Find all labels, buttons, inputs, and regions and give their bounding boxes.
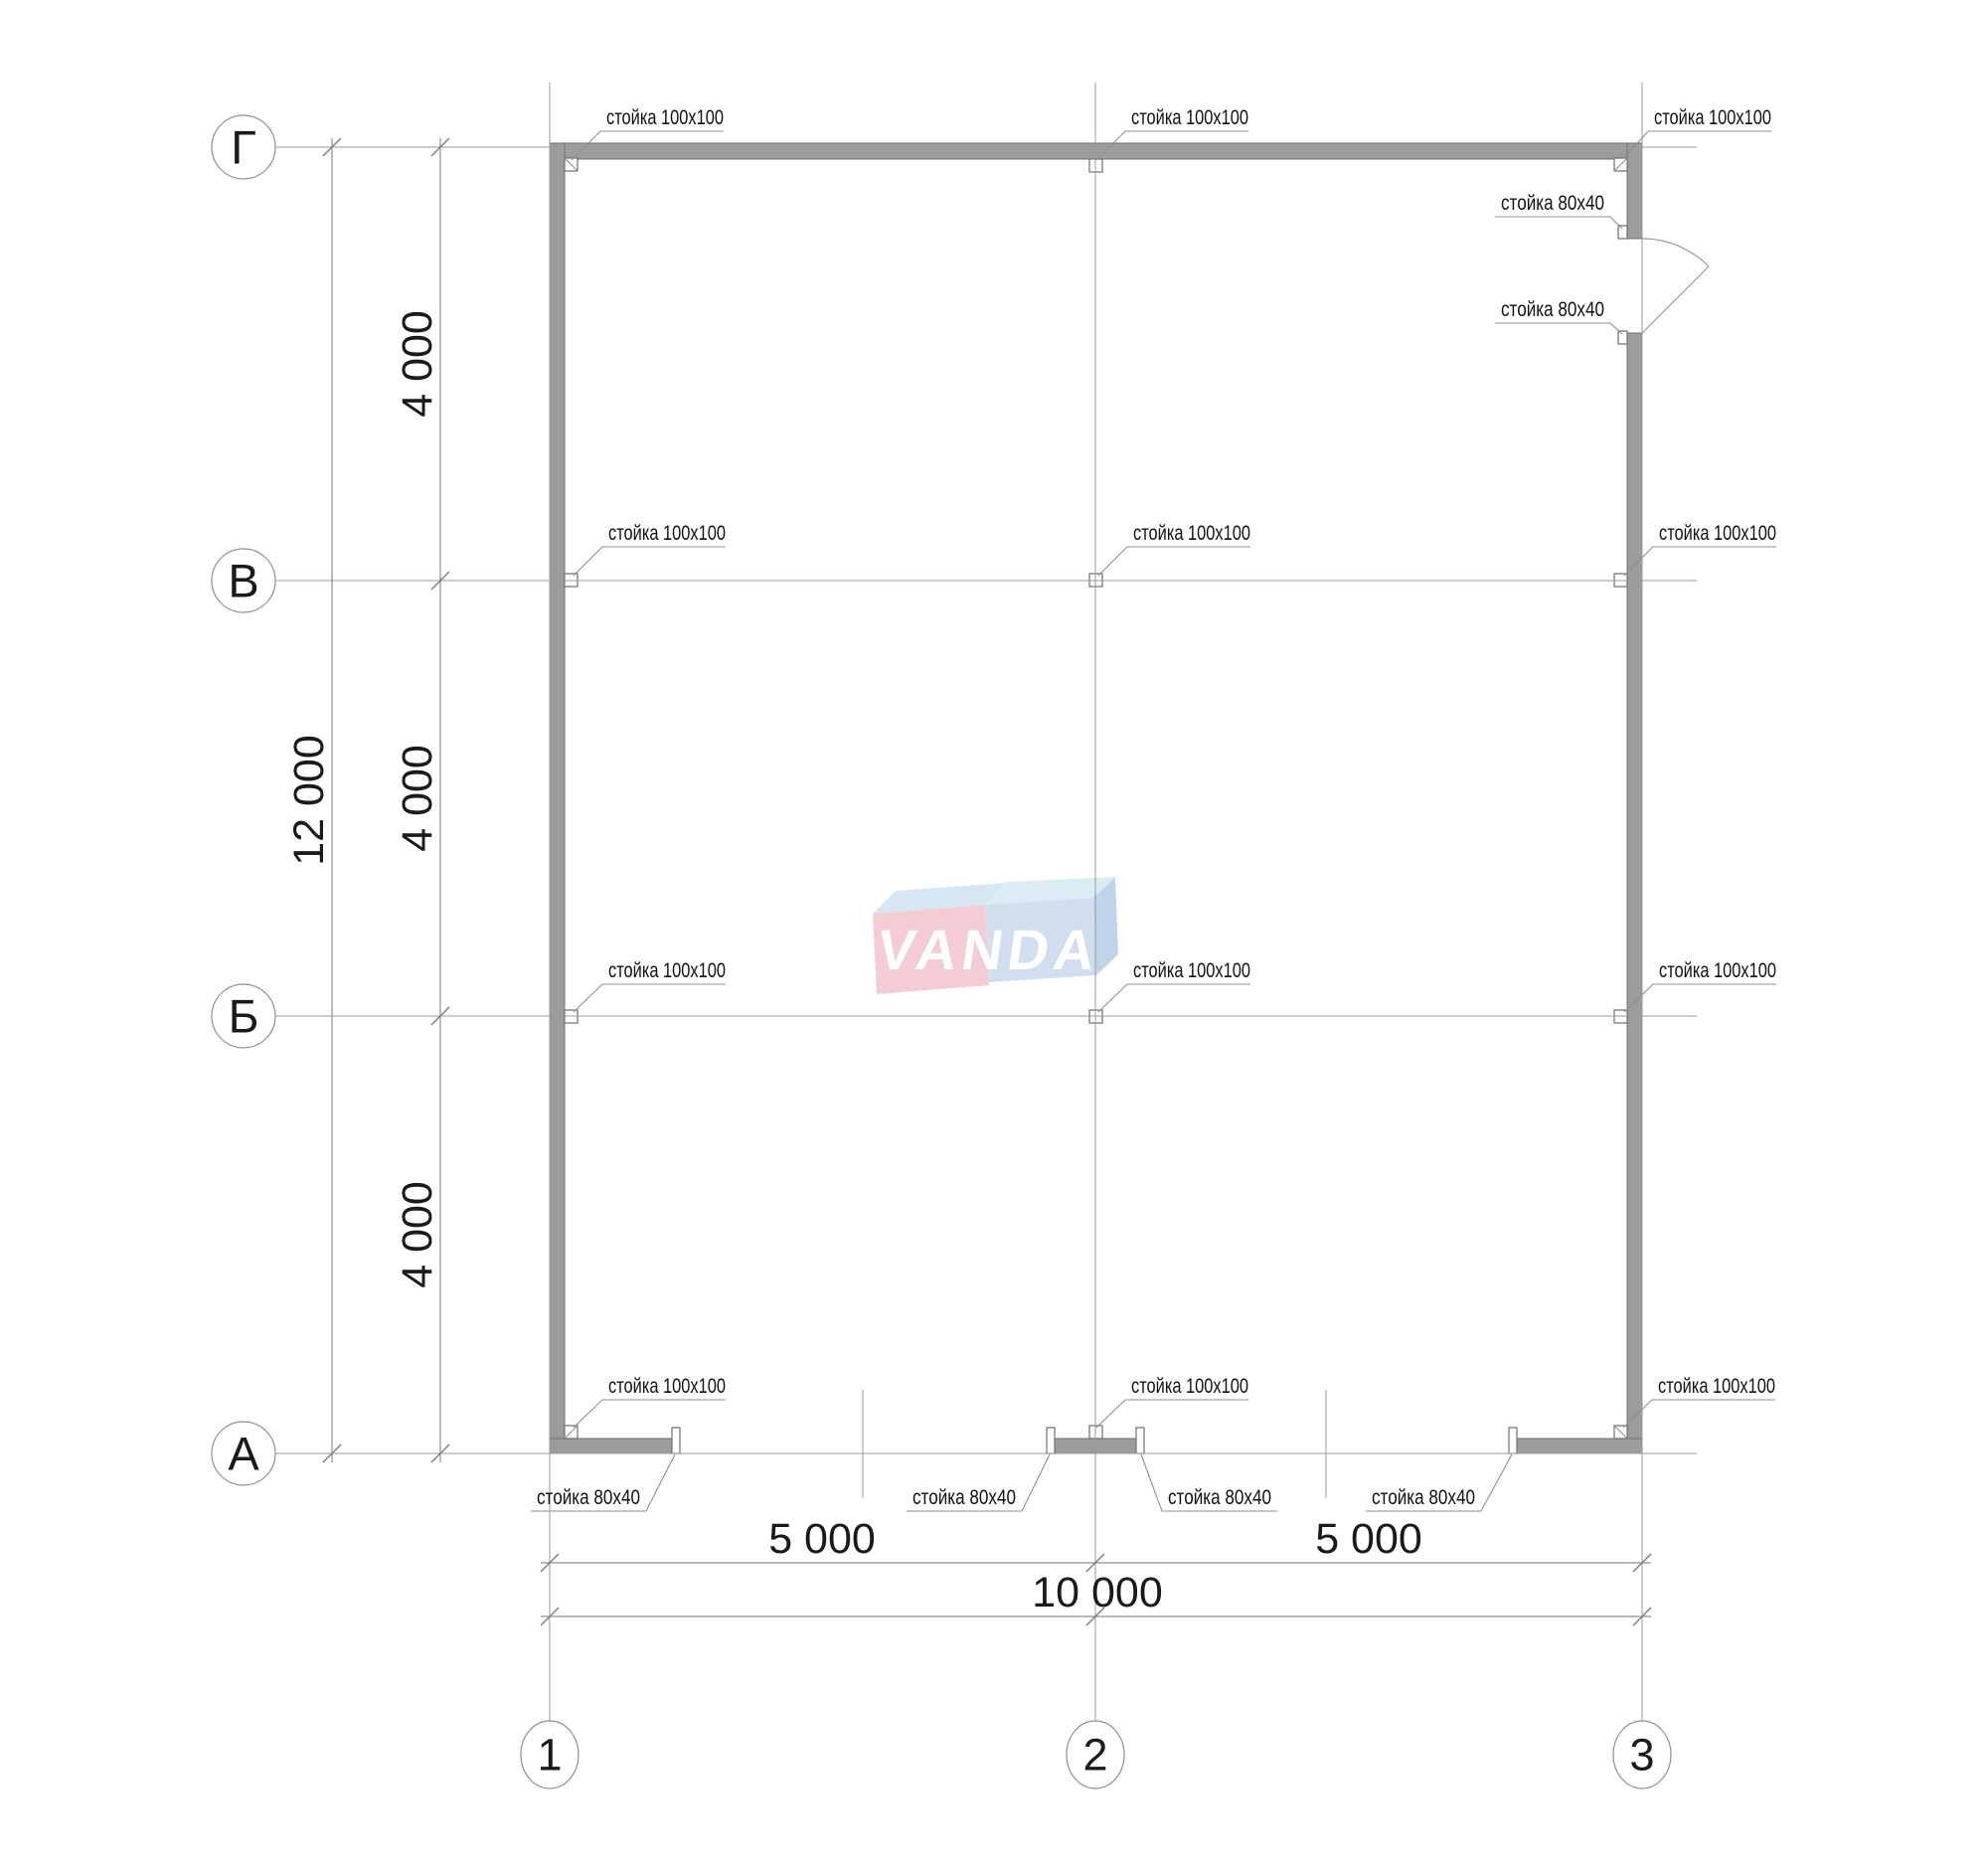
svg-text:1: 1 [537,1730,562,1781]
axis-bubble-row-a: А [212,1422,275,1485]
svg-text:стойка 100x100: стойка 100x100 [606,106,724,129]
corner-post-g1 [565,158,578,171]
post-80-door-lower [1618,331,1627,344]
floor-plan-page: VANDA [0,0,1988,1870]
axis-bubble-col-3: 3 [1613,1721,1671,1788]
dim-text-segment-v-b: 4 000 [394,745,441,852]
post-80-bottom-1 [672,1428,680,1453]
wall-bottom-right-stub [1509,1439,1642,1453]
svg-text:3: 3 [1629,1730,1654,1781]
axis-bubble-row-v: В [212,549,275,612]
svg-text:стойка 100x100: стойка 100x100 [1659,959,1776,982]
svg-text:стойка 100x100: стойка 100x100 [608,1375,726,1398]
wall-right-upper [1627,143,1642,239]
post-80-bottom-2 [1047,1428,1055,1453]
svg-text:В: В [228,555,258,607]
svg-text:стойка 100x100: стойка 100x100 [1133,522,1250,545]
logo-wordmark: VANDA [873,919,1103,982]
svg-text:стойка 100x100: стойка 100x100 [608,959,726,982]
vanda-watermark-logo: VANDA [873,877,1118,994]
dim-text-segment-1-2: 5 000 [768,1515,876,1563]
svg-text:Б: Б [229,990,259,1043]
wall-left [550,143,565,1453]
svg-text:стойка 100x100: стойка 100x100 [1131,1375,1248,1398]
svg-text:стойка 80x40: стойка 80x40 [1501,192,1604,215]
svg-text:стойка 80x40: стойка 80x40 [537,1486,640,1509]
svg-text:стойка 100x100: стойка 100x100 [1654,106,1771,129]
dim-text-horizontal-overall: 10 000 [1032,1569,1163,1616]
svg-text:стойка 80x40: стойка 80x40 [1501,298,1604,321]
corner-post-a1 [565,1426,578,1439]
axis-bubble-row-b: Б [212,984,275,1048]
svg-text:стойка 100x100: стойка 100x100 [1659,522,1776,545]
svg-text:А: А [228,1428,259,1480]
axis-bubble-row-g: Г [212,115,275,179]
svg-text:стойка 100x100: стойка 100x100 [1133,959,1250,982]
dim-text-vertical-overall: 12 000 [285,735,333,866]
wall-bottom-left-stub [550,1439,680,1453]
axis-bubble-col-1: 1 [521,1721,579,1788]
corner-post-g3 [1614,158,1627,171]
dim-text-segment-b-a: 4 000 [394,1181,441,1288]
svg-text:стойка 100x100: стойка 100x100 [1658,1375,1775,1398]
dim-text-segment-2-3: 5 000 [1315,1515,1422,1563]
post-80-bottom-4 [1509,1428,1517,1453]
floor-plan-canvas: VANDA [0,0,1988,1870]
svg-text:стойка 80x40: стойка 80x40 [912,1486,1016,1509]
svg-text:стойка 100x100: стойка 100x100 [1131,106,1248,129]
axis-bubble-col-2: 2 [1067,1721,1124,1788]
svg-text:стойка 80x40: стойка 80x40 [1372,1486,1475,1509]
svg-text:Г: Г [231,121,255,174]
svg-text:стойка 100x100: стойка 100x100 [608,522,726,545]
dim-text-segment-g-v: 4 000 [394,310,441,418]
post-80-bottom-3 [1136,1428,1144,1453]
corner-post-a3 [1614,1426,1627,1439]
wall-right-lower [1627,333,1642,1453]
svg-text:2: 2 [1082,1730,1107,1781]
svg-text:стойка 80x40: стойка 80x40 [1168,1486,1271,1509]
post-80-door-upper [1618,226,1627,239]
